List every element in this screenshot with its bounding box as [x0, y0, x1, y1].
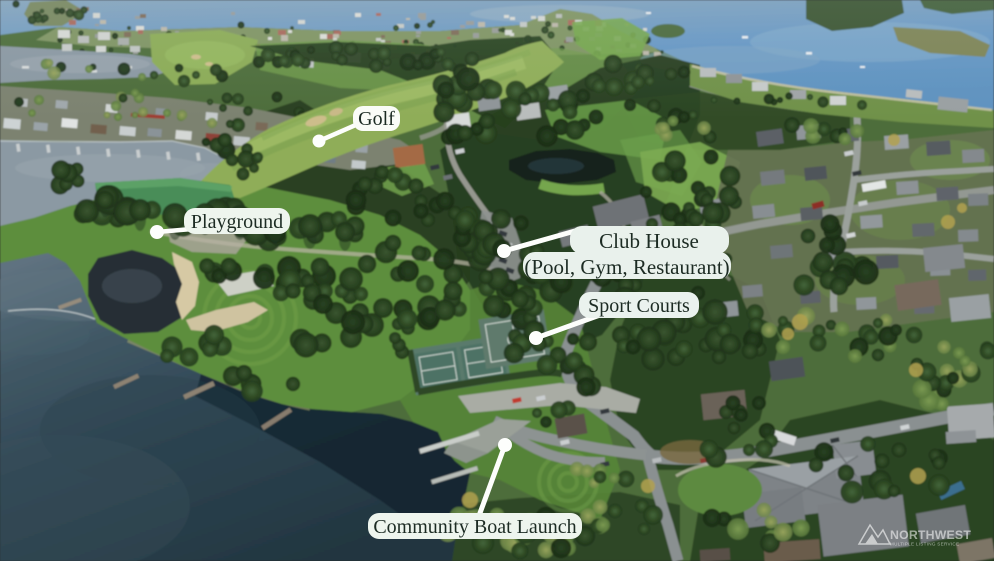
- svg-text:NORTHWEST: NORTHWEST: [890, 528, 971, 542]
- svg-text:Club House: Club House: [599, 229, 699, 253]
- svg-text:Golf: Golf: [358, 108, 395, 130]
- svg-text:Playground: Playground: [191, 211, 283, 233]
- svg-text:Community Boat Launch: Community Boat Launch: [373, 516, 576, 538]
- svg-text:(Pool, Gym, Restaurant): (Pool, Gym, Restaurant): [524, 255, 729, 279]
- svg-text:MULTIPLE LISTING SERVICE: MULTIPLE LISTING SERVICE: [890, 542, 959, 547]
- svg-text:Sport Courts: Sport Courts: [588, 295, 690, 317]
